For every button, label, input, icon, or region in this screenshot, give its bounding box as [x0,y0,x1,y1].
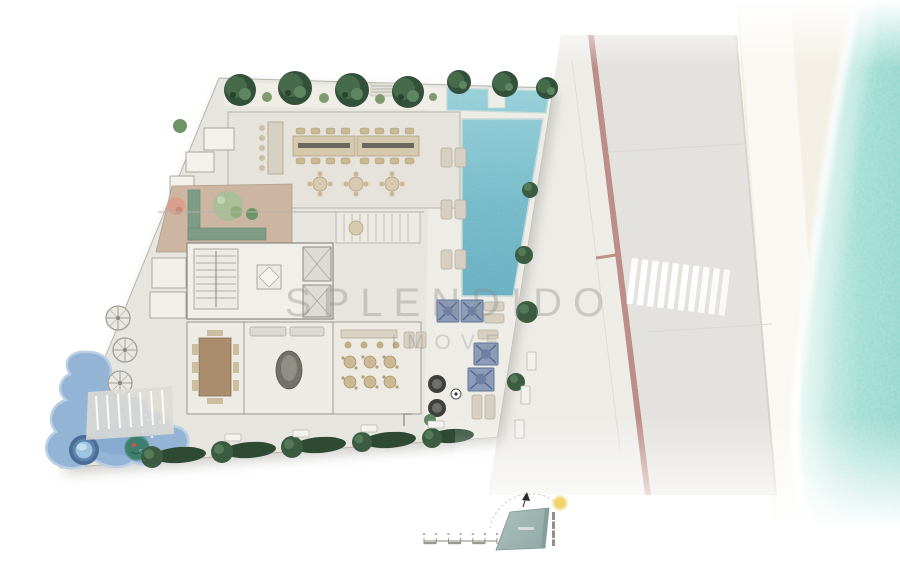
edge-shrub [173,119,187,133]
skylight [257,265,281,289]
parasol-icon [113,338,137,362]
garden-courtyard [156,184,292,252]
round-tables [308,172,405,197]
stairs [194,249,238,309]
locator-label-blur [518,527,534,530]
locator-scale-strip [552,512,555,546]
spa-pool [69,435,99,465]
elevator-2 [303,285,331,317]
site-plan [46,70,558,468]
scene-canvas [0,0,900,563]
lounge-rooms [187,322,333,414]
bar-counter [268,122,283,174]
sun-icon [551,494,569,512]
grand-piano [276,351,302,389]
parasol-icon [106,306,130,330]
fade-top [530,0,900,70]
left-rooms [150,258,186,318]
circulation-core [187,243,333,319]
parking-stripes [86,386,174,440]
elevator-1 [303,247,331,281]
floorplan-rendering: SPLENDIDO IMOVE [0,0,900,563]
pergola-room [336,212,420,243]
